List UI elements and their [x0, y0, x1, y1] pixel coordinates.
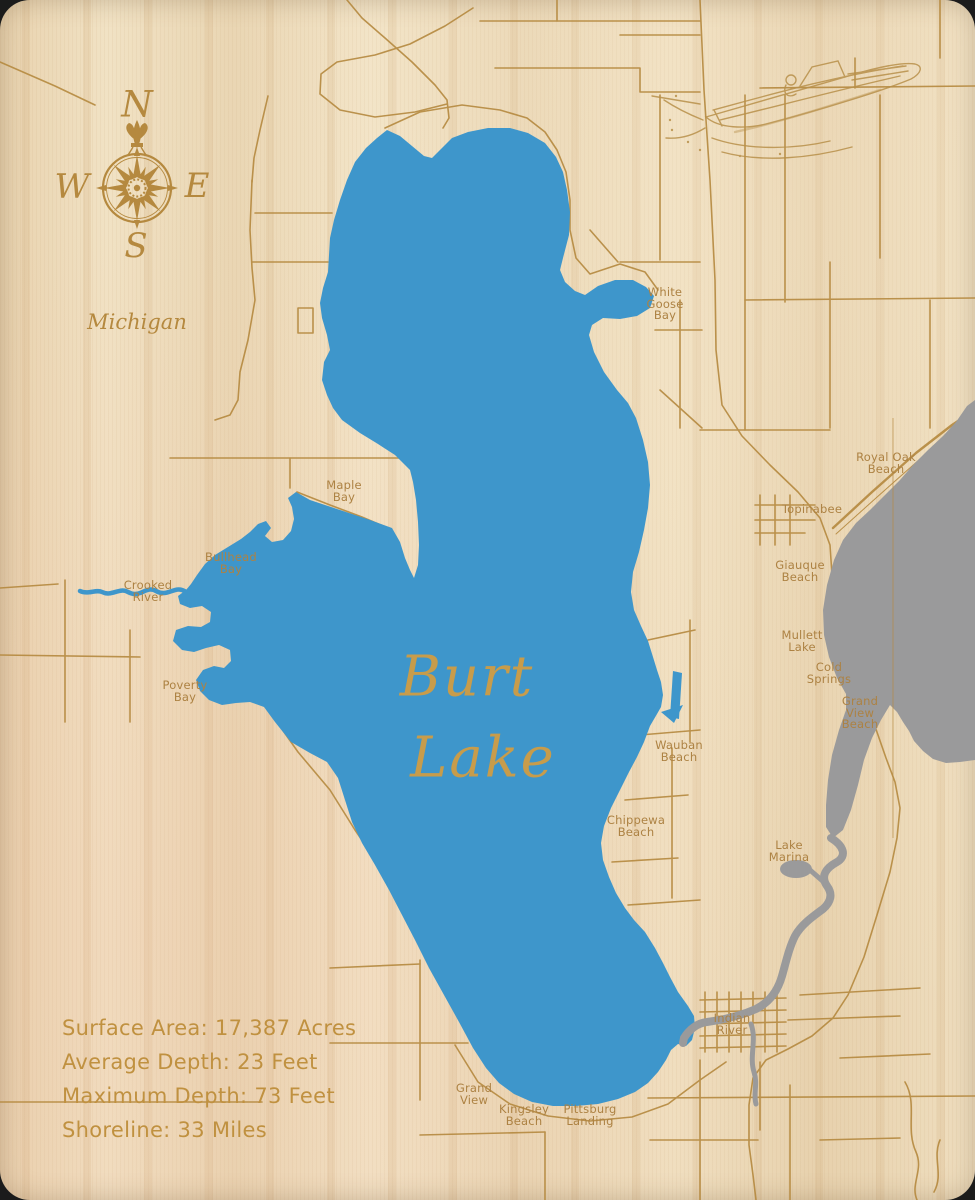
stat-shoreline: Shoreline: 33 Miles: [62, 1118, 267, 1142]
place-label-white-goose-bay: WhiteGooseBay: [646, 287, 683, 322]
place-label-royal-oak-beach: Royal OakBeach: [856, 452, 916, 475]
place-label-pittsburg-landing: PittsburgLanding: [563, 1104, 616, 1127]
place-label-giauque-beach: GiauqueBeach: [775, 560, 825, 583]
lake-title-line1: Burt: [400, 645, 535, 710]
place-label-grand-view: GrandView: [456, 1083, 492, 1106]
wood-map-board: N W E S Michigan Burt Lake WhiteGooseBay…: [0, 0, 975, 1200]
place-label-lake-marina: LakeMarina: [769, 840, 809, 863]
place-label-bullhead-bay: BullheadBay: [205, 552, 257, 575]
place-label-poverty-bay: PovertyBay: [163, 680, 208, 703]
place-label-chippewa-beach: ChippewaBeach: [607, 815, 665, 838]
compass-east-label: E: [185, 166, 210, 206]
place-label-mullett-lake: MullettLake: [781, 630, 822, 653]
lake-title-line2: Lake: [410, 726, 556, 791]
state-label: Michigan: [87, 310, 187, 334]
place-label-indian-river: IndianRiver: [714, 1013, 751, 1036]
compass-west-label: W: [55, 167, 90, 207]
stat-maximum-depth: Maximum Depth: 73 Feet: [62, 1084, 335, 1108]
compass-rose-icon: [96, 120, 178, 229]
burt-lake-water: [80, 128, 695, 1106]
compass-south-label: S: [124, 226, 147, 266]
place-label-kingsley-beach: KingsleyBeach: [499, 1104, 549, 1127]
stat-surface-area: Surface Area: 17,387 Acres: [62, 1016, 356, 1040]
place-label-topinabee: Topinabee: [782, 504, 842, 516]
stat-average-depth: Average Depth: 23 Feet: [62, 1050, 318, 1074]
place-label-maple-bay: MapleBay: [326, 480, 362, 503]
place-label-crooked-river: CrookedRiver: [124, 580, 173, 603]
place-label-grand-view-beach: GrandViewBeach: [842, 696, 879, 731]
compass-north-label: N: [121, 85, 153, 126]
place-label-wauban-beach: WaubanBeach: [655, 740, 703, 763]
place-label-cold-springs: ColdSprings: [807, 662, 852, 685]
